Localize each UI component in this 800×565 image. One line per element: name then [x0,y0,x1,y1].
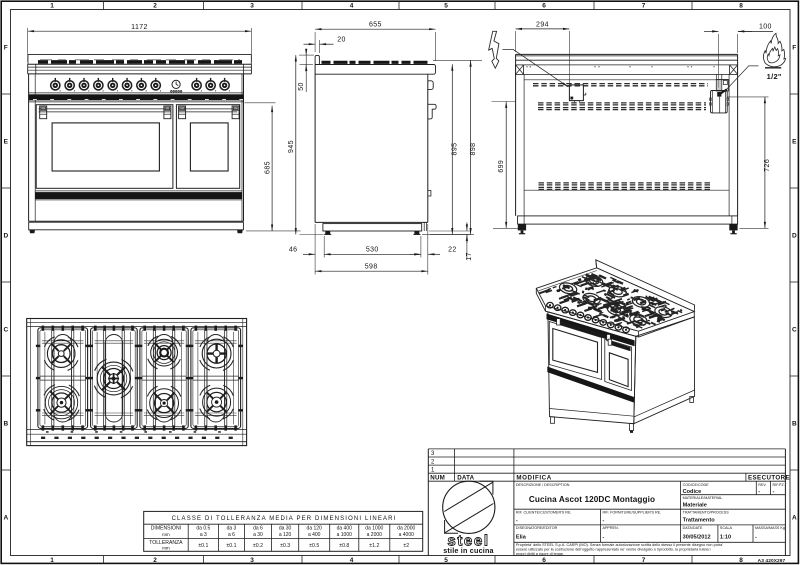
svg-text:a 4000: a 4000 [399,532,415,538]
svg-text:Trattamento: Trattamento [683,518,716,524]
svg-text:-: - [773,489,775,495]
svg-text:DESCRIZIONE / DESCRIPTION: DESCRIZIONE / DESCRIPTION [516,483,570,487]
svg-text:30/05/2012: 30/05/2012 [683,535,711,541]
svg-text:REV.: REV. [758,483,766,487]
svg-text:B: B [3,420,8,427]
svg-text:da 2000: da 2000 [397,526,415,532]
svg-text:C: C [792,326,797,333]
svg-text:MASSA/MASS Kg: MASSA/MASS Kg [755,526,785,530]
svg-text:699: 699 [498,160,505,173]
svg-text:B: B [792,420,797,427]
svg-text:3: 3 [250,3,254,10]
svg-text:598: 598 [365,263,378,270]
svg-text:A: A [792,514,797,521]
svg-text:294: 294 [536,21,549,28]
svg-text:1:10: 1:10 [720,535,731,541]
svg-text:A: A [3,514,8,521]
svg-text:5: 5 [444,3,448,10]
svg-text:2: 2 [153,3,157,10]
svg-text:4: 4 [350,3,354,10]
svg-text:a 3: a 3 [200,532,207,538]
svg-text:±2: ±2 [403,543,409,549]
svg-text:da 3: da 3 [227,526,237,532]
svg-text:da 400: da 400 [337,526,353,532]
svg-text:100: 100 [759,23,772,30]
svg-text:E: E [792,138,797,145]
svg-text:Proprieta' dello STEEL S.p.A.: Proprieta' dello STEEL S.p.A. CARPI (MO)… [516,543,723,547]
svg-text:±0.1: ±0.1 [198,543,208,549]
svg-text:DIMENSIONI: DIMENSIONI [151,526,181,532]
svg-text:Codice: Codice [683,489,702,495]
svg-text:945: 945 [288,140,295,153]
svg-text:2: 2 [153,557,157,564]
svg-text:DISEGNATORE/EDITOR: DISEGNATORE/EDITOR [516,526,558,530]
svg-text:a 1000: a 1000 [337,532,353,538]
svg-text:1/2": 1/2" [767,72,782,81]
svg-text:da 30: da 30 [279,526,292,532]
svg-text:7: 7 [642,3,646,10]
svg-text:3: 3 [250,557,254,564]
svg-text:da 120: da 120 [307,526,323,532]
svg-text:a 400: a 400 [308,532,321,538]
svg-text:RIF. CLIENTE/CUSTOMER'S RE.: RIF. CLIENTE/CUSTOMER'S RE. [516,511,572,515]
svg-text:RIF. FORNITURE/SUPPLIER'S RE.: RIF. FORNITURE/SUPPLIER'S RE. [603,511,662,515]
svg-text:a 30: a 30 [253,532,263,538]
svg-text:MODIFICA: MODIFICA [516,475,551,482]
svg-text:SCALA: SCALA [720,526,733,530]
svg-text:±0.2: ±0.2 [253,543,263,549]
svg-text:-: - [758,489,760,495]
svg-text:mm: mm [162,546,170,551]
svg-text:a 2000: a 2000 [367,532,383,538]
svg-text:6: 6 [542,557,546,564]
svg-text:mm: mm [162,532,170,537]
svg-text:4: 4 [350,557,354,564]
svg-text:895: 895 [452,143,459,156]
svg-text:7: 7 [642,557,646,564]
svg-text:-: - [516,518,518,524]
svg-text:Elia: Elia [516,535,527,541]
svg-text:-: - [603,518,605,524]
svg-text:17: 17 [466,252,473,261]
svg-text:da 1000: da 1000 [365,526,383,532]
svg-text:6: 6 [542,3,546,10]
svg-text:1172: 1172 [131,24,148,31]
svg-text:655: 655 [369,22,382,29]
svg-text:F: F [792,44,796,51]
svg-text:20: 20 [337,37,346,44]
svg-text:1: 1 [50,557,54,564]
svg-text:a 120: a 120 [279,532,292,538]
svg-text:F: F [4,44,8,51]
svg-text:A3 420X297: A3 420X297 [758,558,786,564]
svg-text:MATERIALE/MATERIAL: MATERIALE/MATERIAL [683,496,723,500]
svg-text:726: 726 [764,159,771,172]
svg-text:8: 8 [739,3,743,10]
svg-text:Cucina Ascot 120DC Montaggio: Cucina Ascot 120DC Montaggio [529,495,655,504]
svg-text:DATA: DATA [457,475,474,482]
svg-text:±0.5: ±0.5 [309,543,319,549]
svg-text:685: 685 [265,161,272,174]
svg-text:E: E [4,138,9,145]
svg-text:±1.2: ±1.2 [369,543,379,549]
svg-text:CLASSE DI TOLLERANZA MEDIA PER: CLASSE DI TOLLERANZA MEDIA PER DIMENSION… [172,516,397,522]
svg-text:±0.8: ±0.8 [339,543,349,549]
svg-text:±0.1: ±0.1 [226,543,236,549]
svg-text:stile in cucina: stile in cucina [443,546,494,555]
svg-text:8: 8 [739,557,743,564]
svg-text:D: D [792,232,797,239]
svg-text:898: 898 [470,143,477,156]
svg-text:a 6: a 6 [228,532,235,538]
svg-text:NUM: NUM [430,475,445,482]
svg-text:530: 530 [366,247,379,254]
svg-text:da 0.5: da 0.5 [196,526,210,532]
svg-text:da 6: da 6 [253,526,263,532]
svg-text:DATA/DATE: DATA/DATE [683,526,703,530]
svg-text:propri diritti a rigore di leg: propri diritti a rigore di legge. [516,552,564,556]
svg-text:CODICE/CODE: CODICE/CODE [683,483,710,487]
svg-text:-: - [755,535,757,541]
svg-text:TRATTAMENTO/PROCESS: TRATTAMENTO/PROCESS [683,511,730,515]
svg-text:ESECUTORE: ESECUTORE [748,475,790,482]
svg-text:46: 46 [289,247,298,254]
svg-text:D: D [3,232,8,239]
svg-text:5: 5 [444,557,448,564]
svg-text:±0.3: ±0.3 [280,543,290,549]
svg-text:1: 1 [50,3,54,10]
svg-text:50: 50 [298,82,305,91]
svg-text:22: 22 [448,247,457,254]
svg-text:Materiale: Materiale [683,503,707,509]
svg-text:C: C [3,326,8,333]
svg-text:-: - [603,535,605,541]
svg-text:RIF.PZ.: RIF.PZ. [773,483,785,487]
svg-text:APPREN.: APPREN. [603,526,619,530]
